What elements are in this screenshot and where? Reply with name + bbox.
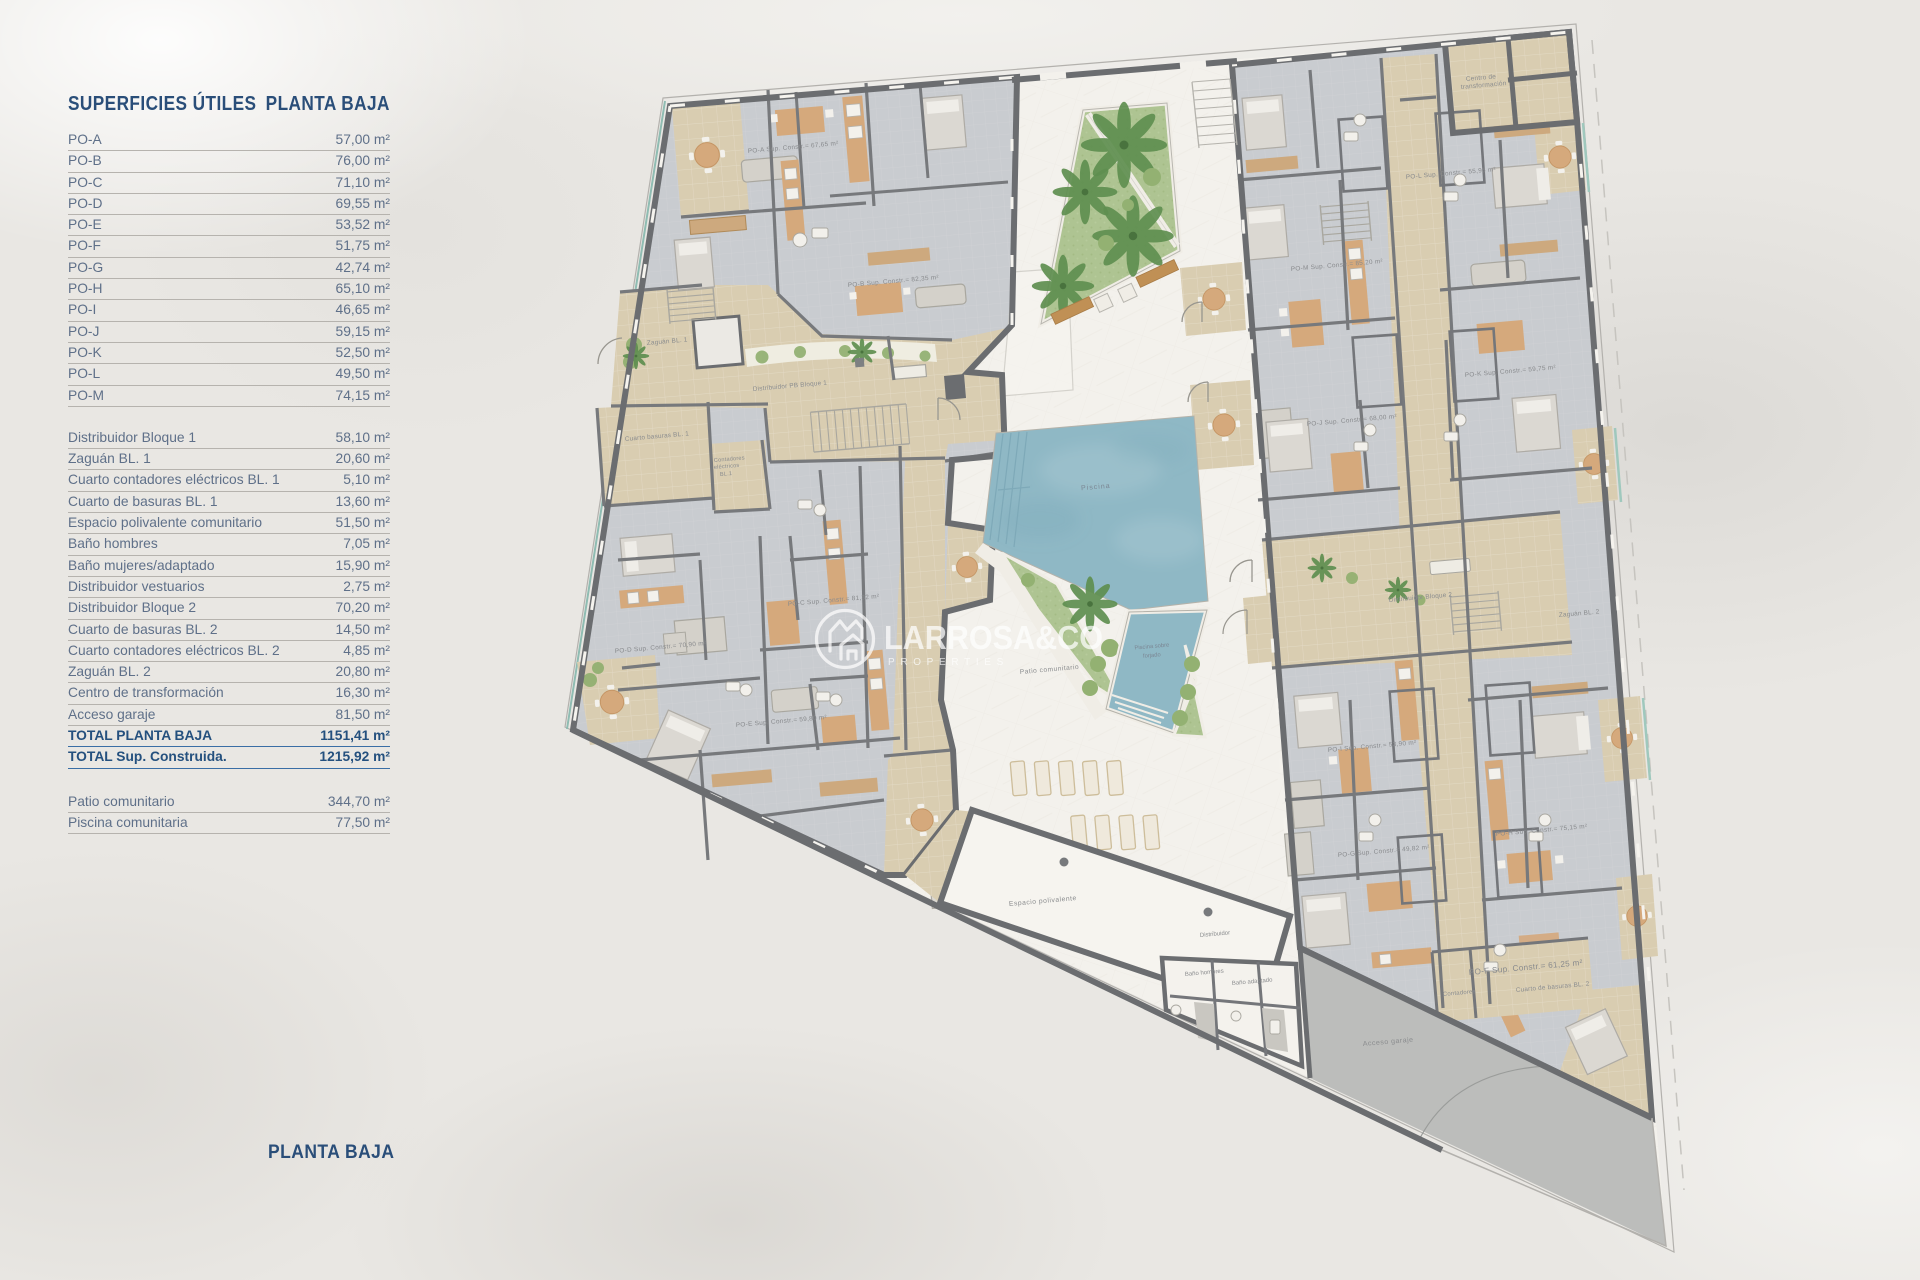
svg-text:BL.1: BL.1 [720, 471, 733, 478]
svg-text:PROPERTIES: PROPERTIES [888, 656, 1009, 668]
svg-text:LARROSA&CO: LARROSA&CO [884, 619, 1103, 656]
